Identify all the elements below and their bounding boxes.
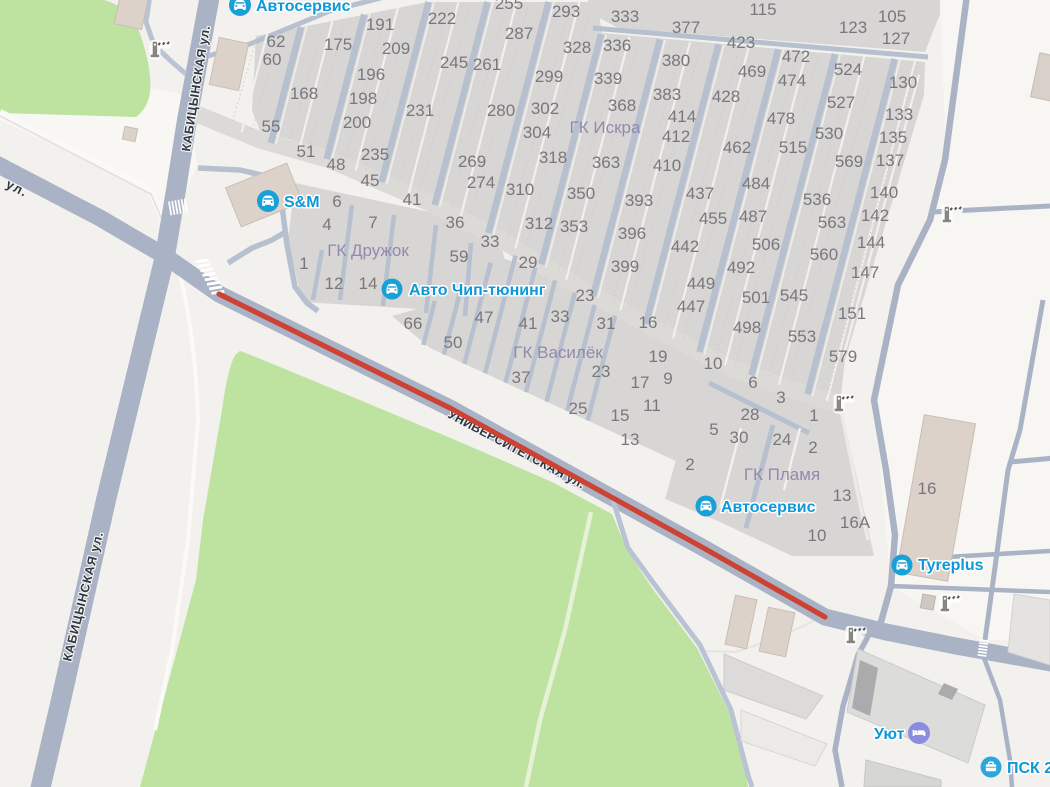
svg-text:447: 447 [677, 297, 705, 316]
svg-text:423: 423 [727, 33, 755, 52]
svg-text:269: 269 [458, 152, 486, 171]
svg-text:231: 231 [406, 101, 434, 120]
svg-text:530: 530 [815, 124, 843, 143]
svg-text:396: 396 [618, 224, 646, 243]
svg-text:16А: 16А [840, 513, 871, 532]
svg-text:393: 393 [625, 191, 653, 210]
svg-text:37: 37 [512, 368, 531, 387]
svg-text:45: 45 [361, 171, 380, 190]
svg-text:140: 140 [870, 183, 898, 202]
svg-text:135: 135 [879, 128, 907, 147]
svg-text:S&M: S&M [284, 194, 320, 211]
svg-text:209: 209 [382, 39, 410, 58]
svg-text:5: 5 [709, 420, 718, 439]
svg-text:318: 318 [539, 148, 567, 167]
svg-text:200: 200 [343, 113, 371, 132]
svg-text:16: 16 [639, 313, 658, 332]
svg-text:10: 10 [704, 354, 723, 373]
svg-text:ПСК 2: ПСК 2 [1007, 760, 1050, 777]
svg-text:399: 399 [611, 257, 639, 276]
svg-text:302: 302 [531, 99, 559, 118]
svg-text:472: 472 [782, 47, 810, 66]
svg-text:48: 48 [327, 155, 346, 174]
svg-text:133: 133 [885, 105, 913, 124]
svg-text:536: 536 [803, 190, 831, 209]
svg-text:1: 1 [299, 254, 308, 273]
svg-text:12: 12 [325, 274, 344, 293]
svg-text:428: 428 [712, 87, 740, 106]
svg-text:Авто Чип-тюнинг: Авто Чип-тюнинг [409, 282, 546, 299]
svg-text:563: 563 [818, 213, 846, 232]
svg-text:333: 333 [611, 7, 639, 26]
svg-text:33: 33 [481, 232, 500, 251]
svg-text:23: 23 [592, 362, 611, 381]
svg-text:380: 380 [662, 51, 690, 70]
svg-text:41: 41 [403, 190, 422, 209]
svg-text:506: 506 [752, 235, 780, 254]
svg-text:31: 31 [597, 314, 616, 333]
svg-text:ГК Василёк: ГК Василёк [513, 343, 603, 362]
svg-text:36: 36 [446, 213, 465, 232]
svg-text:147: 147 [851, 263, 879, 282]
svg-text:328: 328 [563, 38, 591, 57]
svg-text:383: 383 [653, 85, 681, 104]
svg-text:144: 144 [857, 233, 885, 252]
svg-text:501: 501 [742, 288, 770, 307]
svg-text:ГК Искра: ГК Искра [570, 118, 641, 137]
svg-text:462: 462 [723, 138, 751, 157]
svg-text:55: 55 [262, 117, 281, 136]
svg-text:ГК Дружок: ГК Дружок [327, 241, 409, 260]
svg-text:478: 478 [767, 109, 795, 128]
svg-text:127: 127 [882, 29, 910, 48]
svg-text:198: 198 [349, 89, 377, 108]
svg-text:474: 474 [778, 71, 806, 90]
svg-text:50: 50 [444, 333, 463, 352]
svg-text:130: 130 [889, 73, 917, 92]
svg-text:487: 487 [739, 207, 767, 226]
svg-text:Tyreplus: Tyreplus [918, 557, 984, 574]
svg-text:105: 105 [878, 7, 906, 26]
svg-text:14: 14 [359, 274, 378, 293]
svg-text:29: 29 [519, 253, 538, 272]
svg-text:196: 196 [357, 65, 385, 84]
svg-text:293: 293 [552, 2, 580, 21]
svg-text:191: 191 [366, 15, 394, 34]
svg-text:47: 47 [475, 308, 494, 327]
svg-text:437: 437 [686, 184, 714, 203]
svg-text:412: 412 [662, 127, 690, 146]
svg-text:469: 469 [738, 62, 766, 81]
svg-text:13: 13 [621, 430, 640, 449]
svg-text:492: 492 [727, 258, 755, 277]
svg-text:151: 151 [838, 304, 866, 323]
svg-text:33: 33 [551, 307, 570, 326]
svg-text:222: 222 [428, 9, 456, 28]
svg-text:19: 19 [649, 347, 668, 366]
svg-text:274: 274 [467, 173, 495, 192]
svg-text:336: 336 [603, 36, 631, 55]
svg-text:410: 410 [653, 156, 681, 175]
svg-text:442: 442 [671, 237, 699, 256]
svg-text:Автосервис: Автосервис [256, 0, 351, 15]
svg-text:137: 137 [876, 151, 904, 170]
svg-text:28: 28 [741, 405, 760, 424]
svg-text:524: 524 [834, 60, 862, 79]
svg-text:25: 25 [569, 399, 588, 418]
svg-text:115: 115 [749, 0, 776, 19]
svg-text:2: 2 [808, 438, 817, 457]
svg-text:255: 255 [495, 0, 523, 13]
svg-text:66: 66 [404, 314, 423, 333]
svg-text:41: 41 [519, 314, 538, 333]
svg-text:59: 59 [450, 247, 469, 266]
svg-text:168: 168 [290, 84, 318, 103]
svg-text:9: 9 [663, 369, 672, 388]
svg-text:449: 449 [687, 274, 715, 293]
svg-text:569: 569 [835, 152, 863, 171]
svg-text:515: 515 [779, 138, 807, 157]
svg-text:579: 579 [829, 347, 857, 366]
svg-text:545: 545 [780, 286, 808, 305]
svg-text:455: 455 [699, 209, 727, 228]
svg-text:1: 1 [809, 406, 818, 425]
svg-text:553: 553 [788, 327, 816, 346]
svg-text:24: 24 [773, 430, 792, 449]
svg-text:353: 353 [560, 217, 588, 236]
svg-text:6: 6 [332, 192, 341, 211]
svg-text:15: 15 [611, 406, 630, 425]
svg-text:10: 10 [808, 526, 827, 545]
svg-text:3: 3 [776, 388, 785, 407]
svg-text:4: 4 [322, 215, 331, 234]
svg-text:ГК Пламя: ГК Пламя [744, 465, 820, 484]
svg-text:299: 299 [535, 67, 563, 86]
svg-text:62: 62 [267, 32, 286, 51]
svg-text:377: 377 [672, 18, 700, 37]
svg-text:11: 11 [643, 396, 661, 415]
svg-text:60: 60 [263, 50, 282, 69]
svg-text:261: 261 [473, 55, 501, 74]
svg-text:17: 17 [631, 373, 650, 392]
svg-text:368: 368 [608, 96, 636, 115]
svg-text:51: 51 [297, 142, 316, 161]
svg-text:414: 414 [668, 107, 696, 126]
svg-text:287: 287 [505, 24, 533, 43]
svg-text:175: 175 [324, 35, 352, 54]
svg-text:527: 527 [827, 93, 855, 112]
svg-text:310: 310 [506, 180, 534, 199]
svg-text:30: 30 [730, 428, 749, 447]
svg-text:142: 142 [861, 206, 889, 225]
svg-text:16: 16 [918, 479, 937, 498]
svg-text:304: 304 [523, 123, 551, 142]
svg-text:23: 23 [576, 286, 595, 305]
svg-text:7: 7 [368, 213, 377, 232]
svg-text:312: 312 [525, 214, 553, 233]
svg-text:280: 280 [487, 101, 515, 120]
svg-text:363: 363 [592, 153, 620, 172]
svg-text:123: 123 [839, 18, 867, 37]
svg-text:339: 339 [594, 69, 622, 88]
svg-text:13: 13 [833, 486, 852, 505]
svg-text:2: 2 [685, 455, 694, 474]
svg-text:235: 235 [361, 145, 389, 164]
svg-text:498: 498 [733, 318, 761, 337]
svg-text:245: 245 [440, 53, 468, 72]
svg-text:6: 6 [748, 373, 757, 392]
svg-text:350: 350 [567, 184, 595, 203]
svg-text:484: 484 [742, 174, 770, 193]
svg-text:Автосервис: Автосервис [721, 499, 816, 516]
svg-text:Уют: Уют [874, 726, 905, 743]
svg-text:560: 560 [810, 245, 838, 264]
